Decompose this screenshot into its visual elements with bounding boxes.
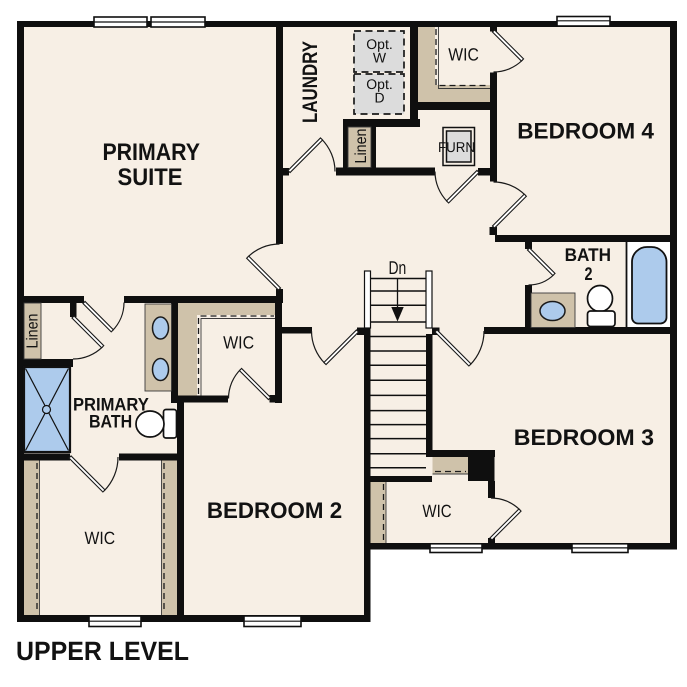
svg-text:UPPER LEVEL: UPPER LEVEL xyxy=(16,636,189,666)
svg-text:BEDROOM 4: BEDROOM 4 xyxy=(517,119,654,144)
svg-text:Linen: Linen xyxy=(24,314,41,349)
svg-text:SUITE: SUITE xyxy=(118,164,183,191)
svg-text:Dn: Dn xyxy=(389,257,407,278)
svg-text:Linen: Linen xyxy=(353,129,370,164)
svg-text:BATH: BATH xyxy=(89,412,132,432)
svg-text:FURN: FURN xyxy=(438,140,475,156)
svg-text:BEDROOM 2: BEDROOM 2 xyxy=(207,498,342,523)
svg-text:WIC: WIC xyxy=(223,333,254,353)
svg-text:WIC: WIC xyxy=(448,45,479,65)
svg-text:PRIMARY: PRIMARY xyxy=(102,139,200,166)
svg-text:W: W xyxy=(373,50,387,66)
svg-text:BATH: BATH xyxy=(565,244,611,265)
svg-text:LAUNDRY: LAUNDRY xyxy=(299,41,322,123)
svg-text:2: 2 xyxy=(585,263,593,284)
svg-text:WIC: WIC xyxy=(85,528,116,548)
svg-text:WIC: WIC xyxy=(422,501,451,521)
svg-text:BEDROOM 3: BEDROOM 3 xyxy=(514,425,654,450)
svg-text:D: D xyxy=(374,90,384,106)
